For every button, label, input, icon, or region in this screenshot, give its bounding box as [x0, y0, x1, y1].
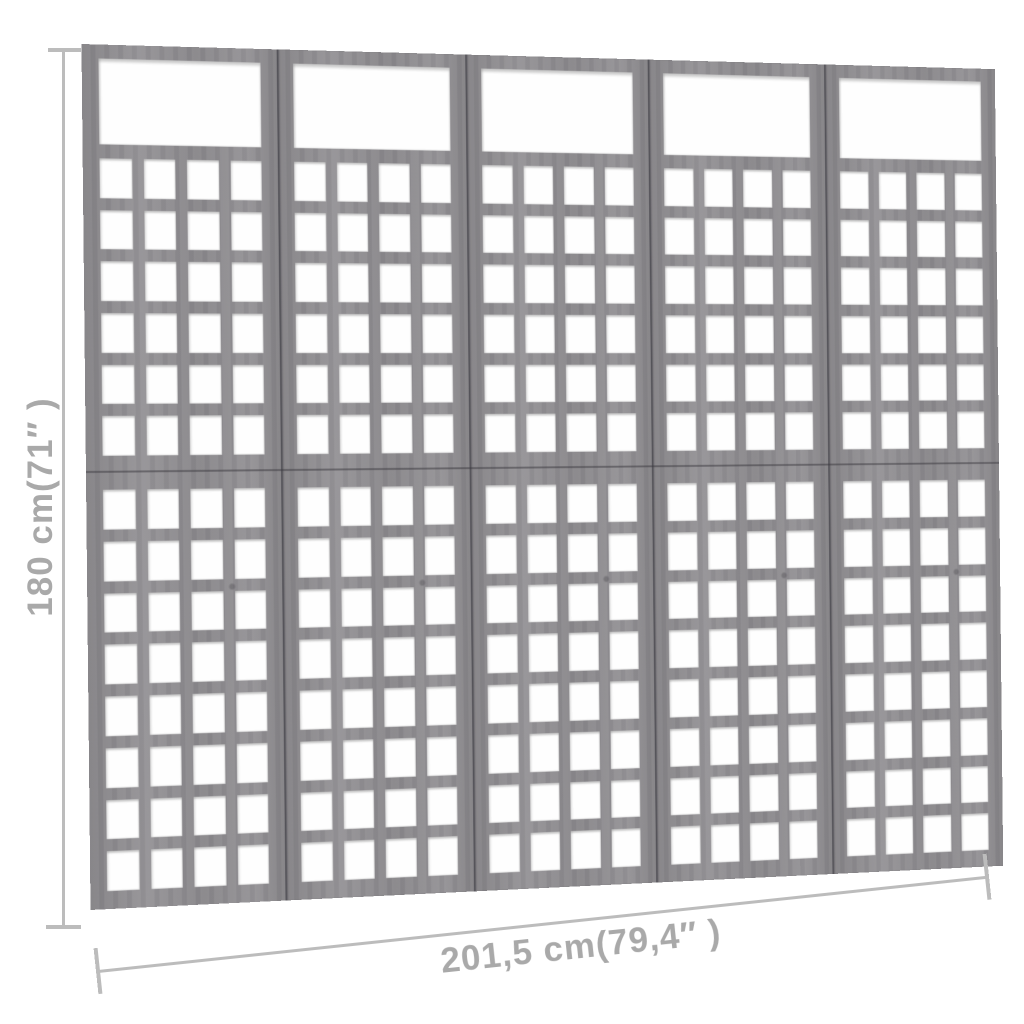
- lattice-opening: [746, 413, 775, 451]
- lattice-opening: [524, 215, 554, 253]
- lattice-opening: [881, 412, 909, 449]
- lattice-opening: [486, 535, 516, 574]
- lattice-opening: [526, 414, 556, 452]
- lattice-opening: [957, 480, 985, 517]
- lattice-opening: [611, 779, 641, 818]
- lattice-opening: [523, 166, 553, 205]
- lattice-opening: [708, 629, 737, 667]
- lattice-opening: [846, 770, 874, 808]
- lattice-opening: [959, 623, 987, 660]
- lattice-opening: [336, 162, 367, 201]
- lattice-opening: [610, 730, 640, 769]
- lattice-opening: [338, 314, 369, 353]
- lattice-opening: [486, 485, 516, 524]
- lattice-opening: [788, 772, 817, 810]
- lattice-opening: [234, 539, 266, 579]
- divider-panel-3: [465, 55, 656, 892]
- lattice-opening: [100, 158, 132, 198]
- lattice-opening: [783, 267, 812, 304]
- lattice-opening: [343, 739, 374, 779]
- panel-upper-lattice: [664, 168, 813, 451]
- panel-mid-rail: [469, 451, 652, 485]
- lattice-opening: [880, 316, 908, 353]
- lattice-opening: [670, 777, 699, 816]
- lattice-opening: [151, 848, 183, 889]
- lattice-opening: [922, 719, 950, 757]
- lattice-opening: [784, 364, 813, 401]
- lattice-opening: [147, 540, 179, 580]
- lattice-opening: [484, 315, 514, 353]
- lattice-opening: [105, 696, 137, 737]
- lattice-opening: [147, 489, 179, 529]
- lattice-opening: [526, 485, 556, 524]
- lattice-opening: [104, 541, 136, 581]
- lattice-opening: [885, 817, 913, 855]
- lattice-opening: [667, 483, 696, 521]
- lattice-opening: [666, 364, 695, 402]
- panel-top-opening: [293, 64, 450, 151]
- lattice-opening: [489, 834, 519, 874]
- lattice-opening: [338, 263, 369, 302]
- lattice-opening: [841, 268, 869, 305]
- lattice-opening: [921, 624, 949, 662]
- width-dimension-label: 201,5 cm(79,4″ ): [439, 912, 723, 981]
- lattice-opening: [187, 211, 219, 251]
- lattice-opening: [482, 165, 512, 204]
- lattice-opening: [385, 788, 416, 828]
- lattice-opening: [298, 487, 329, 526]
- lattice-opening: [923, 815, 951, 853]
- lattice-opening: [379, 214, 410, 253]
- lattice-opening: [143, 159, 175, 199]
- lattice-opening: [148, 592, 180, 632]
- panel-lower-lattice: [486, 484, 641, 874]
- lattice-opening: [343, 789, 374, 829]
- lattice-opening: [571, 830, 601, 869]
- lattice-opening: [144, 262, 176, 302]
- lattice-opening: [386, 838, 417, 878]
- lattice-opening: [608, 533, 638, 571]
- lattice-opening: [956, 316, 984, 353]
- lattice-opening: [299, 588, 330, 628]
- lattice-opening: [844, 577, 872, 615]
- lattice-opening: [422, 314, 453, 352]
- lattice-opening: [840, 171, 868, 208]
- lattice-opening: [298, 538, 329, 578]
- lattice-opening: [605, 216, 635, 254]
- lattice-opening: [878, 172, 906, 209]
- panel-mid-rail: [86, 454, 281, 490]
- lattice-opening: [294, 162, 325, 201]
- lattice-opening: [425, 586, 456, 625]
- lattice-opening: [747, 531, 776, 569]
- lattice-opening: [483, 215, 513, 254]
- lattice-opening: [146, 365, 178, 404]
- lattice-opening: [301, 791, 332, 831]
- lattice-opening: [569, 682, 599, 721]
- lattice-opening: [671, 826, 700, 865]
- lattice-opening: [340, 537, 371, 576]
- height-dimension-line: [62, 50, 65, 927]
- lattice-opening: [705, 267, 734, 305]
- lattice-opening: [146, 416, 178, 456]
- lattice-opening: [789, 821, 818, 860]
- lattice-opening: [565, 315, 595, 353]
- lattice-opening: [841, 316, 869, 353]
- lattice-opening: [611, 828, 641, 867]
- lattice-opening: [381, 415, 412, 454]
- lattice-opening: [530, 832, 560, 872]
- lattice-opening: [960, 718, 988, 756]
- lattice-opening: [488, 734, 518, 773]
- lattice-opening: [424, 536, 455, 575]
- lattice-opening: [709, 726, 738, 765]
- lattice-opening: [237, 844, 269, 885]
- lattice-opening: [236, 692, 268, 732]
- lattice-opening: [295, 212, 326, 251]
- lattice-opening: [103, 489, 135, 529]
- lattice-opening: [917, 220, 945, 257]
- lattice-opening: [106, 747, 138, 788]
- lattice-opening: [845, 625, 873, 663]
- lattice-opening: [301, 842, 332, 882]
- lattice-opening: [706, 413, 735, 451]
- lattice-opening: [668, 581, 697, 619]
- lattice-opening: [705, 315, 734, 353]
- lattice-opening: [148, 643, 180, 683]
- lattice-opening: [880, 364, 908, 401]
- lattice-opening: [528, 633, 558, 672]
- lattice-opening: [194, 795, 226, 836]
- lattice-opening: [704, 169, 733, 207]
- lattice-opening: [295, 263, 326, 302]
- lattice-opening: [339, 415, 370, 454]
- lattice-opening: [570, 781, 600, 820]
- panel-lower-lattice: [667, 482, 817, 865]
- lattice-opening: [382, 486, 413, 525]
- lattice-opening: [150, 746, 182, 787]
- panel-upper-lattice: [294, 162, 454, 454]
- lattice-opening: [297, 415, 328, 454]
- lattice-opening: [918, 316, 946, 353]
- panel-lower-lattice: [843, 480, 989, 857]
- lattice-opening: [919, 412, 947, 449]
- lattice-opening: [422, 364, 453, 403]
- lattice-opening: [605, 266, 635, 304]
- panel-lower-lattice: [298, 486, 459, 882]
- lattice-opening: [846, 722, 874, 760]
- lattice-opening: [105, 644, 137, 684]
- divider-panel-5: [824, 64, 1003, 874]
- height-dimension-bottom-tick: [46, 925, 81, 929]
- lattice-opening: [784, 316, 813, 353]
- lattice-opening: [607, 413, 637, 451]
- lattice-opening: [788, 724, 817, 762]
- lattice-opening: [529, 733, 559, 772]
- lattice-opening: [704, 218, 733, 256]
- lattice-opening: [882, 528, 910, 565]
- lattice-opening: [920, 528, 948, 565]
- lattice-opening: [188, 262, 220, 301]
- lattice-opening: [604, 167, 634, 205]
- lattice-opening: [489, 784, 519, 824]
- lattice-opening: [786, 530, 815, 568]
- lattice-opening: [955, 221, 983, 258]
- lattice-opening: [483, 265, 513, 303]
- lattice-opening: [565, 265, 595, 303]
- lattice-opening: [487, 585, 517, 624]
- lattice-opening: [785, 413, 814, 450]
- lattice-opening: [189, 313, 221, 352]
- lattice-opening: [426, 736, 457, 776]
- lattice-opening: [231, 263, 263, 302]
- lattice-opening: [150, 797, 182, 838]
- lattice-opening: [191, 540, 223, 580]
- lattice-opening: [958, 575, 986, 612]
- lattice-opening: [423, 414, 454, 453]
- lattice-opening: [743, 218, 772, 256]
- lattice-opening: [664, 168, 693, 206]
- lattice-opening: [300, 690, 331, 730]
- lattice-opening: [606, 315, 636, 353]
- lattice-opening: [666, 315, 695, 353]
- lattice-opening: [709, 678, 738, 716]
- lattice-opening: [920, 480, 948, 517]
- lattice-opening: [842, 364, 870, 401]
- lattice-opening: [231, 212, 263, 251]
- divider-panel-4: [648, 60, 833, 883]
- lattice-opening: [194, 846, 226, 887]
- lattice-opening: [879, 268, 907, 305]
- lattice-opening: [882, 480, 910, 517]
- panel-upper-lattice: [100, 158, 265, 456]
- lattice-opening: [785, 482, 814, 520]
- lattice-opening: [342, 689, 373, 729]
- lattice-opening: [421, 264, 452, 303]
- lattice-opening: [566, 414, 596, 452]
- lattice-opening: [883, 576, 911, 614]
- lattice-opening: [488, 684, 518, 723]
- lattice-opening: [381, 364, 412, 403]
- lattice-opening: [787, 675, 816, 713]
- lattice-opening: [235, 641, 267, 681]
- lattice-opening: [783, 219, 812, 257]
- height-dimension-label: 180 cm(71″ ): [21, 397, 61, 616]
- lattice-opening: [380, 314, 411, 353]
- lattice-opening: [384, 637, 415, 676]
- lattice-opening: [339, 364, 370, 403]
- lattice-opening: [844, 529, 872, 567]
- lattice-opening: [917, 268, 945, 305]
- lattice-opening: [382, 536, 413, 575]
- lattice-opening: [748, 676, 777, 714]
- lattice-opening: [606, 364, 636, 402]
- lattice-opening: [232, 314, 264, 353]
- lattice-opening: [842, 412, 870, 449]
- lattice-opening: [669, 630, 698, 668]
- lattice-opening: [384, 687, 415, 727]
- lattice-opening: [958, 527, 986, 564]
- lattice-opening: [961, 813, 989, 851]
- lattice-opening: [921, 576, 949, 613]
- lattice-opening: [570, 731, 600, 770]
- panel-lower-lattice: [103, 488, 269, 891]
- panel-top-opening: [98, 58, 261, 147]
- lattice-opening: [337, 213, 368, 252]
- lattice-opening: [235, 590, 267, 630]
- lattice-opening: [956, 364, 984, 401]
- lattice-opening: [420, 164, 451, 203]
- lattice-opening: [230, 161, 262, 201]
- lattice-opening: [567, 484, 597, 522]
- panel-mid-rail: [828, 448, 999, 481]
- lattice-opening: [340, 487, 371, 526]
- lattice-opening: [750, 822, 779, 861]
- panel-top-opening: [839, 78, 982, 161]
- lattice-opening: [960, 766, 988, 804]
- lattice-opening: [564, 216, 594, 254]
- lattice-opening: [145, 313, 177, 352]
- lattice-opening: [745, 364, 774, 401]
- lattice-opening: [782, 170, 811, 208]
- lattice-opening: [383, 587, 414, 626]
- panel-mid-rail: [652, 450, 829, 484]
- lattice-opening: [744, 267, 773, 305]
- lattice-opening: [233, 415, 265, 454]
- lattice-opening: [747, 579, 776, 617]
- lattice-opening: [748, 628, 777, 666]
- lattice-opening: [144, 210, 176, 250]
- lattice-opening: [957, 412, 985, 449]
- lattice-opening: [954, 173, 982, 210]
- lattice-opening: [610, 681, 640, 720]
- lattice-opening: [191, 591, 223, 631]
- lattice-opening: [746, 482, 775, 520]
- lattice-opening: [847, 818, 875, 856]
- lattice-opening: [424, 486, 455, 525]
- lattice-opening: [885, 769, 913, 807]
- lattice-opening: [665, 266, 694, 304]
- lattice-opening: [568, 534, 598, 573]
- lattice-opening: [190, 416, 222, 455]
- lattice-opening: [707, 482, 736, 520]
- lattice-opening: [425, 636, 456, 675]
- lattice-opening: [237, 794, 269, 834]
- lattice-opening: [101, 261, 133, 301]
- lattice-opening: [707, 531, 736, 569]
- panel-top-opening: [663, 73, 810, 157]
- lattice-opening: [299, 639, 330, 679]
- lattice-opening: [959, 670, 987, 708]
- lattice-opening: [427, 786, 458, 826]
- lattice-opening: [916, 173, 944, 210]
- lattice-opening: [845, 674, 873, 712]
- lattice-opening: [664, 217, 693, 255]
- lattice-opening: [426, 686, 457, 725]
- lattice-opening: [710, 775, 739, 814]
- lattice-opening: [884, 672, 912, 710]
- lattice-opening: [955, 269, 983, 306]
- lattice-opening: [743, 170, 772, 208]
- product-diagram: 180 cm(71″ ) 201,5 cm(79,4″ ): [0, 0, 1024, 1024]
- lattice-opening: [100, 210, 132, 250]
- lattice-opening: [568, 583, 598, 622]
- lattice-opening: [379, 163, 410, 202]
- lattice-opening: [232, 365, 264, 404]
- lattice-opening: [670, 728, 699, 767]
- lattice-opening: [385, 738, 416, 778]
- lattice-opening: [884, 720, 912, 758]
- lattice-opening: [667, 413, 696, 451]
- lattice-opening: [149, 694, 181, 734]
- lattice-opening: [192, 642, 224, 682]
- lattice-opening: [427, 836, 458, 876]
- lattice-opening: [190, 488, 222, 528]
- room-divider: [81, 44, 1003, 910]
- lattice-opening: [101, 313, 133, 353]
- lattice-opening: [380, 264, 411, 303]
- lattice-opening: [104, 592, 136, 632]
- lattice-opening: [527, 534, 557, 573]
- panel-upper-lattice: [482, 165, 636, 453]
- lattice-opening: [107, 850, 139, 891]
- lattice-opening: [923, 767, 951, 805]
- lattice-opening: [840, 219, 868, 256]
- lattice-opening: [749, 774, 778, 813]
- lattice-opening: [193, 744, 225, 784]
- lattice-opening: [102, 365, 134, 405]
- lattice-opening: [843, 481, 871, 518]
- lattice-opening: [608, 484, 638, 522]
- lattice-opening: [706, 364, 735, 402]
- lattice-opening: [566, 364, 596, 402]
- panel-mid-rail: [281, 453, 470, 488]
- lattice-opening: [296, 314, 327, 353]
- lattice-opening: [525, 315, 555, 353]
- lattice-opening: [529, 683, 559, 722]
- divider-panel-1: [81, 44, 285, 910]
- lattice-opening: [487, 634, 517, 673]
- lattice-opening: [193, 693, 225, 733]
- room-divider-scene: [81, 34, 1024, 910]
- lattice-opening: [524, 265, 554, 303]
- lattice-opening: [296, 365, 327, 404]
- lattice-opening: [883, 624, 911, 662]
- panel-upper-lattice: [840, 171, 985, 449]
- lattice-opening: [711, 824, 740, 863]
- lattice-opening: [786, 578, 815, 616]
- lattice-opening: [745, 316, 774, 353]
- lattice-opening: [234, 488, 266, 528]
- lattice-opening: [344, 840, 375, 880]
- height-dimension-top-tick: [48, 48, 81, 52]
- panel-top-opening: [481, 69, 633, 155]
- lattice-opening: [569, 632, 599, 671]
- lattice-opening: [525, 364, 555, 402]
- lattice-opening: [708, 580, 737, 618]
- lattice-opening: [609, 582, 639, 621]
- lattice-opening: [669, 679, 698, 718]
- lattice-opening: [341, 588, 372, 627]
- lattice-opening: [609, 631, 639, 670]
- lattice-opening: [189, 365, 221, 404]
- lattice-opening: [530, 782, 560, 821]
- lattice-opening: [528, 584, 558, 623]
- lattice-opening: [879, 220, 907, 257]
- lattice-opening: [102, 416, 134, 456]
- lattice-opening: [484, 364, 514, 402]
- lattice-opening: [922, 671, 950, 709]
